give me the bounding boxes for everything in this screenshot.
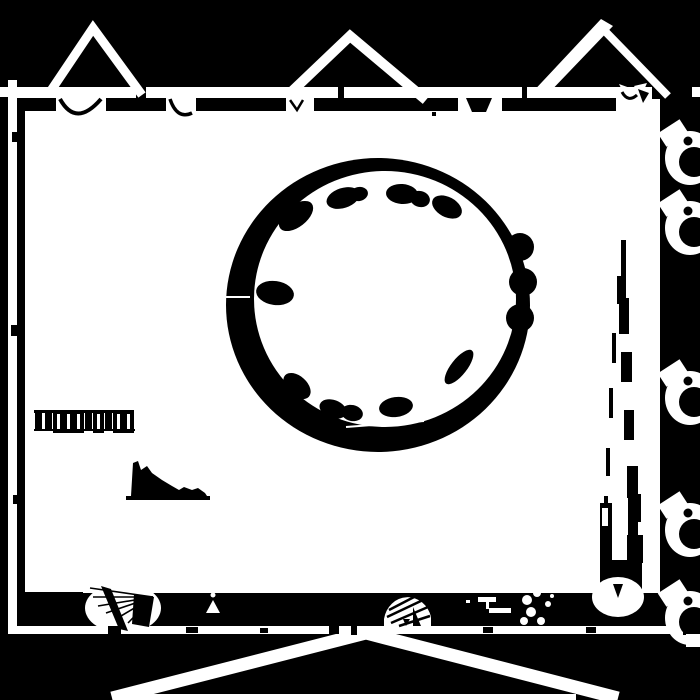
band-white-notch (686, 634, 700, 647)
stepped-dash (606, 448, 610, 476)
window-bar-solid (45, 412, 52, 431)
band-tick (186, 627, 198, 633)
band-dash-mark (486, 602, 489, 609)
window-bar-outline (65, 412, 72, 431)
chevron-apex (361, 627, 371, 636)
window-bar-solid (35, 412, 42, 431)
band-dot (533, 589, 541, 597)
band-dot (526, 607, 536, 617)
wave-baseline (126, 496, 210, 500)
artwork-stage (0, 0, 700, 700)
knobs-layer (506, 233, 537, 332)
clamp-pin (684, 137, 693, 146)
stepped-dash (609, 388, 613, 418)
bottom-strip (128, 694, 576, 700)
window-bar-outline (75, 412, 82, 431)
band-dash-mark (466, 600, 470, 603)
left-strip (8, 80, 17, 632)
wall-tick (522, 83, 527, 98)
window-bar-outline (95, 412, 102, 431)
window-bar-outline (125, 412, 132, 431)
stepped-bar (624, 410, 634, 440)
top-band (0, 87, 700, 97)
artwork-canvas (0, 0, 700, 700)
table-knob (506, 233, 534, 261)
clamp-pin (684, 509, 693, 518)
band-tick (108, 626, 121, 634)
stepped-bar (621, 240, 626, 282)
band-dash-mark (478, 597, 496, 602)
door-arch (592, 577, 644, 617)
clamp-pin (684, 377, 693, 386)
window-bar-outline (115, 412, 122, 431)
band-tick (260, 628, 268, 633)
band-tick (351, 626, 357, 635)
stepped-bar (627, 535, 643, 563)
band-dot (522, 595, 532, 605)
band-dot (520, 617, 528, 625)
cone-dot (211, 593, 216, 598)
wall-tick (338, 83, 344, 98)
band-dot (543, 587, 548, 592)
bars-layer (35, 412, 132, 431)
window-bar-outline (55, 412, 62, 431)
fan-circle (85, 583, 161, 633)
stepped-bar (619, 298, 629, 334)
clamp-pin (684, 207, 693, 216)
band-tick (329, 626, 339, 634)
band-dot (545, 601, 551, 607)
left-wall (17, 98, 25, 598)
top-wall (25, 98, 652, 111)
band-tick (586, 627, 596, 633)
window-bar-solid (105, 412, 112, 431)
band-tick (683, 626, 698, 635)
band-dot (537, 617, 545, 625)
stepped-notch (602, 508, 608, 526)
stepped-bar (621, 352, 632, 382)
strip-tick (12, 132, 19, 142)
band-dot (550, 594, 554, 598)
table-knob (506, 304, 534, 332)
strip-tick (13, 495, 19, 504)
window-bar-solid (85, 412, 92, 431)
stepped-dash (612, 333, 616, 363)
band-tick (483, 627, 493, 633)
stepped-bar (627, 466, 638, 498)
wall-gap (616, 97, 652, 112)
band-dash-mark (489, 608, 511, 613)
wall-dot (432, 112, 436, 116)
table-knob (509, 268, 537, 296)
strip-tick (11, 325, 19, 336)
clamp-pin (684, 597, 693, 606)
